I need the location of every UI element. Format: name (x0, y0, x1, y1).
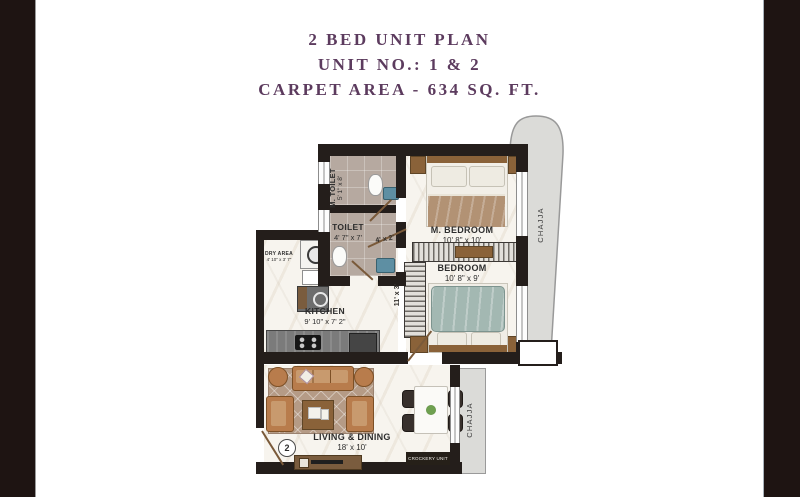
title-line-1: 2 BED UNIT PLAN (36, 27, 763, 52)
dry-area-label: DRY AREA 4' 10" x 3' 7" (258, 251, 300, 263)
m-bedroom-bed (426, 155, 508, 227)
wall-kitchen-bottom (258, 352, 398, 364)
m-bed-pillow-left (431, 166, 467, 187)
passage-dims: 11' x 3' (386, 275, 398, 315)
wall-living-right-a (450, 365, 460, 387)
m-bed-pillow-right (469, 166, 505, 187)
right-dark-bar (763, 0, 800, 497)
unit-number-marker: 2 (278, 439, 296, 457)
bedroom-label: BEDROOM 10' 8" x 9' (412, 263, 512, 284)
tv-console (294, 455, 362, 470)
m-bed-headboard (427, 156, 507, 163)
wall-divider-1 (396, 156, 406, 198)
sofa-three-seater (292, 366, 354, 391)
kitchen-appliance (349, 333, 377, 354)
coffee-table (302, 400, 334, 430)
title-line-3: CARPET AREA - 634 SQ. FT. (36, 77, 763, 102)
floor-plan: CHAJJA CHAJJA M. BEDROOM 10' 8" x 10' BE… (250, 110, 590, 495)
wall-right-a (516, 144, 528, 172)
wall-right-b (516, 236, 528, 286)
coffee-table-item (321, 409, 329, 420)
toilet-wc (332, 246, 347, 267)
m-bed-blanket (428, 194, 505, 227)
armchair-left-cushion (271, 401, 286, 426)
armchair-left (266, 396, 294, 432)
m-bedroom-side-table-left (410, 156, 426, 174)
wardrobe-dresser (455, 246, 493, 258)
left-dark-bar (0, 0, 36, 497)
kitchen-label: KITCHEN 9' 10" x 7' 2" (285, 306, 365, 326)
dining-table (414, 386, 448, 434)
armchair-right (346, 396, 374, 432)
chajja-bottom-label: CHAJJA (465, 382, 477, 458)
toilet-label: TOILET 4' 7" x 7' (310, 222, 386, 242)
title-line-2: UNIT NO.: 1 & 2 (36, 52, 763, 77)
pouf-left (268, 367, 288, 387)
bedroom-headboard (429, 345, 507, 352)
tv-shelf-box (299, 458, 309, 468)
window-living (450, 387, 460, 443)
armchair-right-cushion (352, 401, 367, 426)
living-dining-label: LIVING & DINING 18' x 10' (302, 432, 402, 453)
dining-plant (426, 405, 436, 415)
crockery-unit: CROCKERY UNIT (406, 452, 450, 465)
stove (295, 335, 321, 350)
toilet-basin (376, 258, 395, 273)
pouf-right (354, 367, 374, 387)
wall-toilet-bottom-a (322, 276, 350, 286)
window-bedroom-corner (518, 340, 558, 366)
page: { "window": { "side_bar_color": "#1e1412… (0, 0, 800, 497)
bedroom-duvet (431, 286, 505, 332)
wall-bedroom-bottom-a (398, 352, 408, 364)
bedroom-bed (428, 283, 508, 353)
window-bedroom (516, 286, 528, 342)
kitchen-sink (313, 292, 328, 307)
m-toilet-label: M. TOILET 5' 1" x 8' (328, 156, 352, 220)
chajja-top-label: CHAJJA (536, 187, 548, 263)
tv-screen (311, 460, 343, 464)
m-toilet-wc (368, 174, 383, 196)
plan-title: 2 BED UNIT PLAN UNIT NO.: 1 & 2 CARPET A… (36, 27, 763, 102)
wall-top (318, 144, 526, 156)
coffee-table-tray (308, 407, 321, 419)
window-m-bedroom (516, 172, 528, 236)
